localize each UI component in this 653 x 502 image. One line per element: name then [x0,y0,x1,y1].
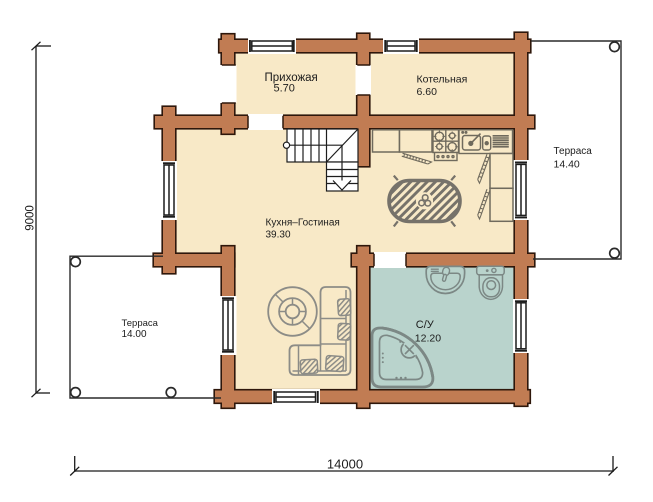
svg-text:5.70: 5.70 [274,83,295,95]
svg-text:14.00: 14.00 [122,329,147,340]
svg-text:14000: 14000 [327,456,363,471]
svg-text:Кухня–Гостиная: Кухня–Гостиная [266,218,340,229]
svg-text:14.40: 14.40 [554,158,580,170]
svg-text:С/У: С/У [416,319,435,331]
svg-text:Терраса: Терраса [122,318,159,329]
svg-text:12.20: 12.20 [415,332,441,344]
svg-text:Котельная: Котельная [417,74,468,86]
svg-text:39.30: 39.30 [266,230,291,241]
svg-text:6.60: 6.60 [417,86,438,98]
svg-text:Терраса: Терраса [554,146,593,157]
svg-text:9000: 9000 [25,205,37,231]
